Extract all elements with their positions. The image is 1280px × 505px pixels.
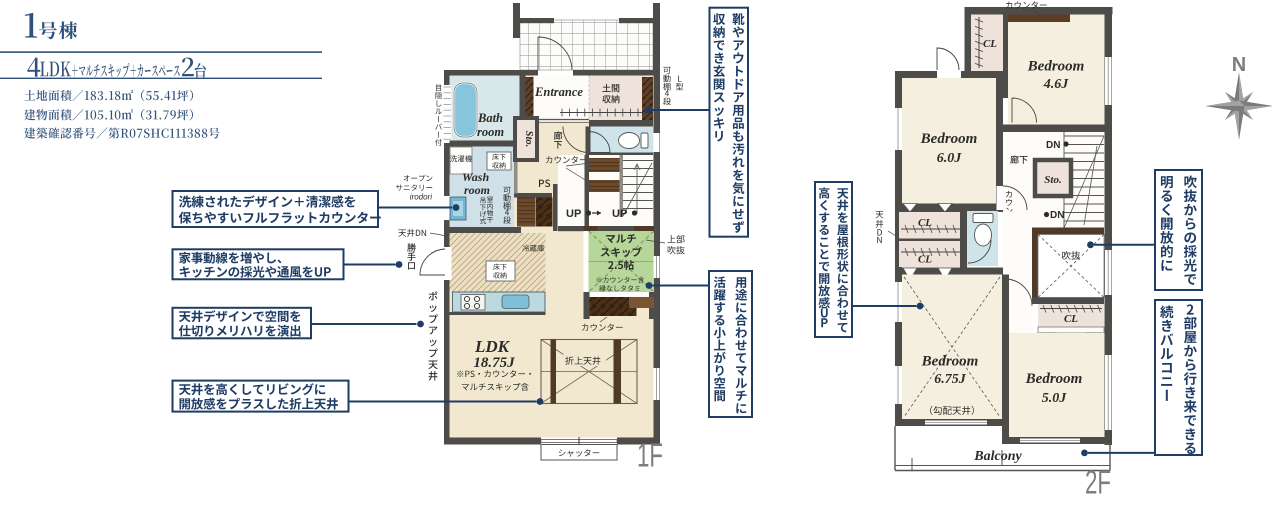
svg-text:DN: DN: [1046, 140, 1060, 151]
svg-text:4.6J: 4.6J: [1043, 77, 1070, 92]
svg-text:irodori: irodori: [410, 193, 432, 202]
svg-text:6.0J: 6.0J: [937, 151, 963, 166]
svg-text:Sto.: Sto.: [523, 131, 534, 148]
svg-text:18.75J: 18.75J: [473, 355, 515, 371]
svg-text:UP: UP: [566, 208, 581, 220]
svg-text:N: N: [1232, 54, 1246, 76]
svg-text:Bedroom: Bedroom: [1025, 371, 1083, 387]
svg-text:CL: CL: [983, 38, 997, 50]
svg-text:LDK: LDK: [474, 337, 511, 356]
svg-text:UP: UP: [612, 208, 627, 220]
svg-text:Sto.: Sto.: [1044, 174, 1061, 186]
svg-text:6.75J: 6.75J: [934, 372, 967, 387]
svg-text:Entrance: Entrance: [534, 85, 583, 99]
svg-text:5.0J: 5.0J: [1042, 391, 1068, 406]
svg-text:2F: 2F: [1085, 464, 1111, 501]
svg-text:Bedroom: Bedroom: [1027, 59, 1085, 75]
svg-text:Wash: Wash: [462, 170, 489, 184]
svg-text:DN: DN: [1050, 210, 1064, 221]
svg-text:CL: CL: [1064, 313, 1078, 325]
svg-text:room: room: [464, 183, 490, 197]
svg-text:Bedroom: Bedroom: [921, 354, 979, 370]
svg-text:Balcony: Balcony: [973, 449, 1022, 464]
svg-text:Bedroom: Bedroom: [920, 131, 978, 147]
svg-text:CL: CL: [918, 254, 932, 266]
svg-text:1F: 1F: [637, 437, 663, 474]
svg-text:CL: CL: [918, 217, 932, 229]
svg-text:room: room: [477, 125, 504, 139]
svg-text:Bath: Bath: [477, 111, 503, 125]
